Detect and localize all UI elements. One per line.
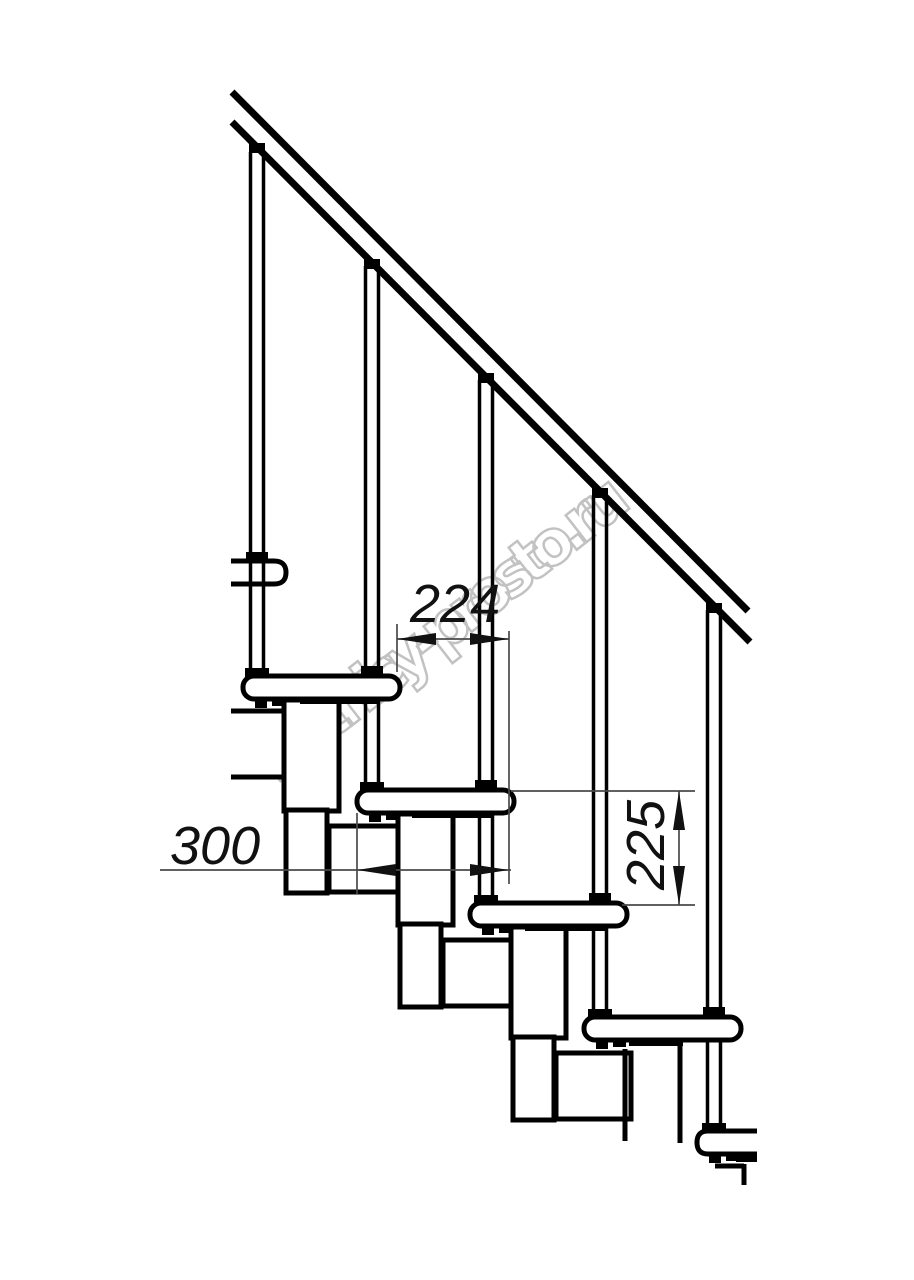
baluster-cap [592, 488, 608, 498]
module-column [284, 700, 339, 811]
baluster-collar [246, 552, 268, 562]
baluster-foot [360, 782, 384, 791]
module-block [400, 924, 441, 1007]
baluster-cap [249, 143, 265, 153]
tread-3 [470, 903, 627, 926]
dim-label-224: 224 [409, 574, 500, 634]
baluster-foot [474, 895, 498, 904]
dim-label-300: 300 [170, 816, 260, 876]
module-square-edges [715, 1164, 744, 1185]
tread-1 [243, 676, 400, 699]
module-block [286, 810, 327, 893]
tread-2 [357, 790, 514, 813]
support-modules [284, 700, 744, 1185]
staircase-drawing: lestnicy-prosto.ru [0, 0, 914, 1280]
baluster-cap [478, 373, 494, 383]
baluster-5 [708, 610, 721, 1131]
baluster-collar [589, 893, 611, 903]
handrail-top-line [232, 92, 748, 611]
baluster-4 [594, 495, 607, 1017]
staircase-drawing-svg: lestnicy-prosto.ru [0, 0, 914, 1280]
baluster-cap [706, 603, 722, 613]
fittings [245, 143, 757, 1163]
module-square-0-partial [231, 711, 289, 777]
baluster-collar [703, 1007, 725, 1017]
tread-0-partial [231, 561, 286, 584]
baluster-foot [245, 668, 269, 677]
module-column [511, 927, 566, 1038]
baluster-foot [588, 1009, 612, 1018]
dim-label-225: 225 [616, 799, 676, 891]
tread-4 [584, 1017, 741, 1040]
module-square [443, 940, 518, 1006]
module-block [513, 1037, 554, 1120]
tread-5-partial [697, 1131, 757, 1154]
baluster-collar [361, 666, 383, 676]
module-square [329, 826, 404, 892]
baluster-collar [475, 780, 497, 790]
baluster-foot [702, 1123, 726, 1132]
module-square [556, 1053, 631, 1119]
baluster-1 [251, 152, 264, 676]
baluster-cap [364, 259, 380, 269]
module-chain-4-partial [625, 1046, 744, 1185]
